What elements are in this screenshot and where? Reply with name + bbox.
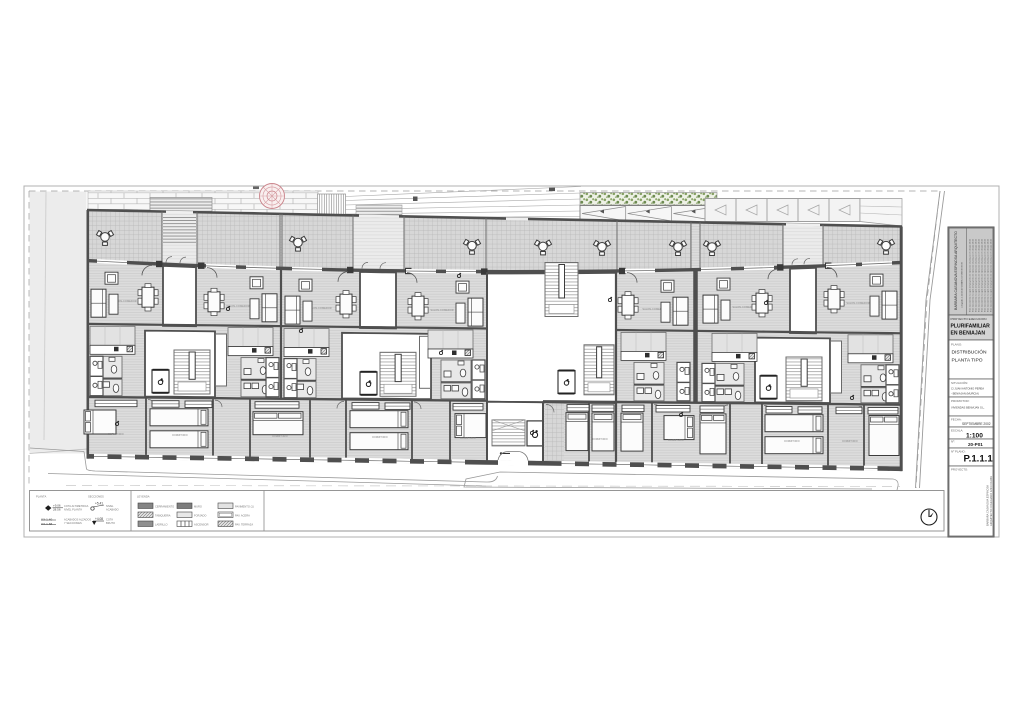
svg-text:ACABADO: ACABADO (106, 508, 119, 512)
svg-text:SEPTIEMBRE 2002: SEPTIEMBRE 2002 (962, 422, 991, 426)
svg-text:+4.08: +4.08 (95, 517, 103, 521)
svg-text:Este documento es copia del pr: Este documento es copia del proyecto de … (987, 239, 990, 312)
svg-text:DORMITORIO: DORMITORIO (668, 439, 684, 442)
svg-text:DORMITORIO: DORMITORIO (784, 440, 800, 443)
svg-text:DORMITORIO: DORMITORIO (842, 440, 858, 443)
svg-text:LADRILLO: LADRILLO (155, 522, 168, 526)
svg-text:C/ JUAN ANTONIO PEREA: C/ JUAN ANTONIO PEREA (951, 387, 984, 391)
svg-text:- BENIAJAN (MURCIA): - BENIAJAN (MURCIA) (951, 392, 979, 396)
svg-text:CERRAMIENTO: CERRAMIENTO (155, 504, 174, 508)
svg-text:+5.41: +5.41 (95, 502, 103, 506)
svg-text:COTA: COTA (106, 518, 113, 522)
svg-text:Este documento es copia del pr: Este documento es copia del proyecto de … (975, 239, 978, 312)
svg-text:SITUACIÓN:: SITUACIÓN: (951, 380, 968, 385)
svg-text:PLANTA: PLANTA (36, 495, 46, 499)
svg-text:EN BENIAJAN: EN BENIAJAN (951, 331, 986, 337)
svg-text:SALON-COMEDOR: SALON-COMEDOR (430, 308, 453, 312)
svg-text:Este documento es copia del pr: Este documento es copia del proyecto de … (969, 239, 972, 312)
svg-text:BARBARA CASANOVA ESPINOSA: BARBARA CASANOVA ESPINOSA (986, 485, 990, 526)
svg-text:DORMITORIO: DORMITORIO (460, 437, 476, 440)
svg-text:FORJADO: FORJADO (194, 513, 206, 517)
svg-text:20-P01: 20-P01 (968, 442, 983, 447)
svg-text:BRUTO: BRUTO (106, 521, 115, 525)
svg-text:SALON-COMEDOR: SALON-COMEDOR (846, 301, 869, 305)
svg-text:PLANTA TIPO: PLANTA TIPO (952, 358, 983, 364)
svg-text:DORMITORIO: DORMITORIO (592, 438, 608, 441)
svg-text:PAVIMENTO (1): PAVIMENTO (1) (235, 504, 254, 508)
svg-text:PLURIFAMILIAR: PLURIFAMILIAR (951, 324, 991, 330)
svg-text:PROYECTO EJECUCION: PROYECTO EJECUCION (951, 317, 987, 321)
svg-text:DORMITORIO: DORMITORIO (272, 435, 288, 438)
svg-text:XX-1.40: XX-1.40 (41, 518, 52, 522)
svg-text:MURO: MURO (194, 504, 202, 508)
svg-text:ARQUITECTO COLEGIADO 1234 COAM: ARQUITECTO COLEGIADO 1234 COAMU (989, 476, 993, 526)
svg-text:colegiada n 1234 del COAMU tel: colegiada n 1234 del COAMU telf 968 00 0… (961, 261, 964, 308)
svg-text:Este documento es copia del pr: Este documento es copia del proyecto de … (981, 239, 984, 312)
svg-text:SALON-COMEDOR: SALON-COMEDOR (226, 304, 249, 308)
svg-text:SECCIONES: SECCIONES (88, 495, 104, 499)
svg-text:DORMITORIO: DORMITORIO (372, 436, 388, 439)
svg-text:PROMOTOR:: PROMOTOR: (951, 399, 970, 403)
svg-text:ESCALA:: ESCALA: (951, 429, 963, 433)
svg-text:VIVIENDAS BENIAJAN S.L.: VIVIENDAS BENIAJAN S.L. (951, 406, 985, 410)
svg-text:LEYENDA: LEYENDA (137, 495, 150, 499)
svg-text:FECHA:: FECHA: (951, 418, 962, 422)
svg-text:XX-1.88: XX-1.88 (41, 522, 52, 526)
svg-text:Este documento es copia del pr: Este documento es copia del proyecto de … (972, 239, 975, 312)
svg-text:DISTRIBUCIÓN: DISTRIBUCIÓN (952, 349, 988, 356)
svg-text:Este documento es copia del pr: Este documento es copia del proyecto de … (978, 239, 981, 312)
svg-text:Nº:: Nº: (951, 440, 955, 444)
svg-text:PAV. TERRAZA: PAV. TERRAZA (235, 522, 253, 526)
svg-text:PROYECTO:: PROYECTO: (951, 468, 968, 472)
svg-text:NIVEL: NIVEL (106, 504, 114, 508)
svg-text:Y SECCIONES: Y SECCIONES (64, 521, 82, 525)
svg-text:NIVEL PLANTA: NIVEL PLANTA (64, 508, 82, 512)
svg-text:P.1.1.1: P.1.1.1 (964, 454, 994, 465)
svg-text:ACABADOS ALZADOS: ACABADOS ALZADOS (64, 518, 91, 522)
svg-text:DORMITORIO: DORMITORIO (108, 433, 124, 436)
svg-text:PAV. ACERA: PAV. ACERA (235, 513, 250, 517)
svg-text:TABIQUERIA: TABIQUERIA (155, 513, 171, 517)
svg-text:Este documento es copia del pr: Este documento es copia del proyecto de … (990, 239, 993, 312)
svg-text:1:100: 1:100 (966, 433, 983, 440)
svg-text:ASCENSOR: ASCENSOR (194, 522, 209, 526)
svg-text:DORMITORIO: DORMITORIO (172, 434, 188, 437)
svg-text:PLANO:: PLANO: (951, 343, 962, 347)
svg-text:Este documento es copia del pr: Este documento es copia del proyecto de … (984, 239, 987, 312)
svg-text:28.56: 28.56 (53, 508, 61, 512)
svg-text:BARBARA CASANOVA ESPINOSA ARQU: BARBARA CASANOVA ESPINOSA ARQUITECTO (954, 231, 958, 310)
svg-text:COTA ALTIMETRICA: COTA ALTIMETRICA (64, 504, 89, 508)
